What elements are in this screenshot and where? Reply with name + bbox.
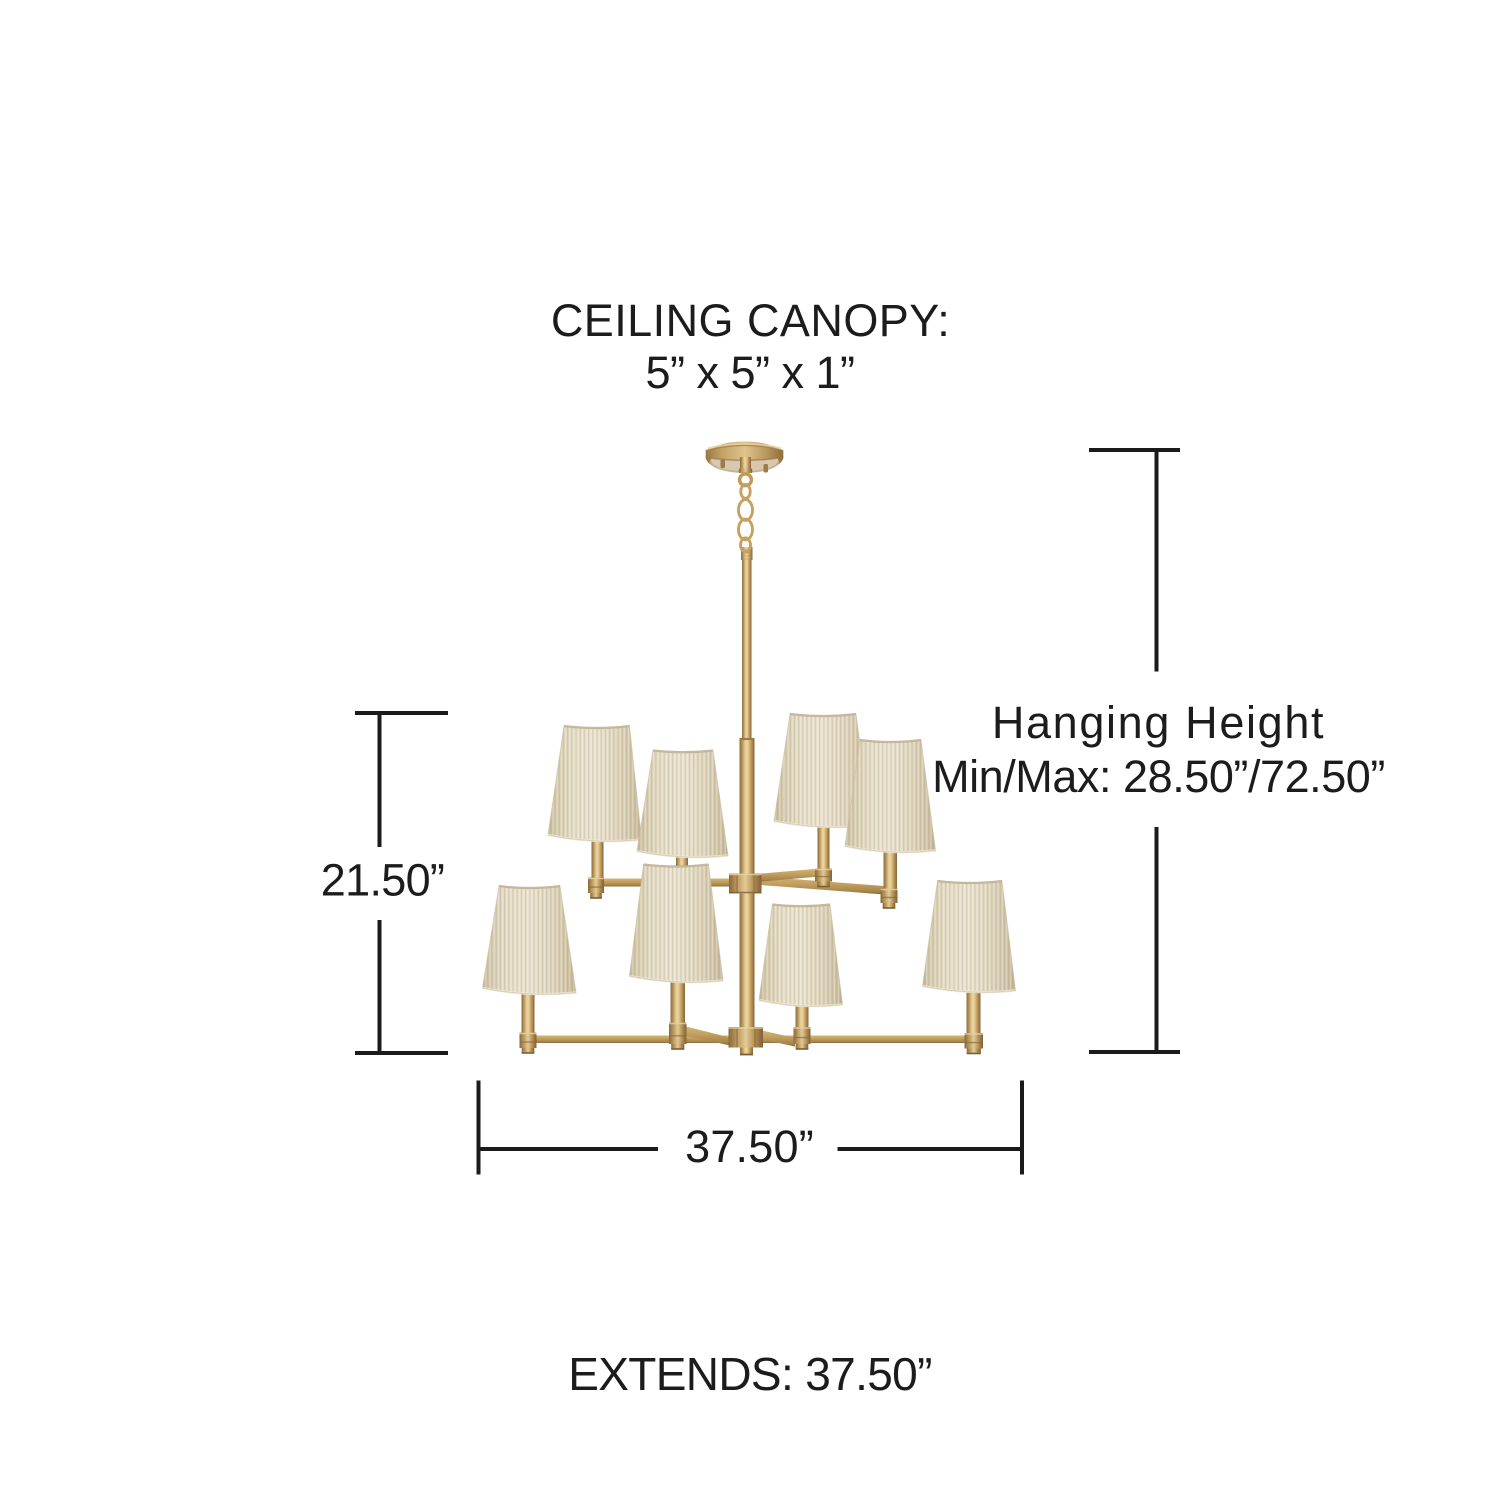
svg-text:EXTENDS: 37.50”: EXTENDS: 37.50” <box>568 1348 932 1400</box>
svg-text:Min/Max: 28.50”/72.50”: Min/Max: 28.50”/72.50” <box>932 751 1385 802</box>
svg-text:37.50”: 37.50” <box>685 1121 814 1172</box>
svg-text:CEILING CANOPY:: CEILING CANOPY: <box>551 295 950 346</box>
svg-text:Hanging Height: Hanging Height <box>992 697 1325 748</box>
svg-text:21.50”: 21.50” <box>321 855 444 906</box>
svg-text:5” x 5” x 1”: 5” x 5” x 1” <box>645 347 854 398</box>
